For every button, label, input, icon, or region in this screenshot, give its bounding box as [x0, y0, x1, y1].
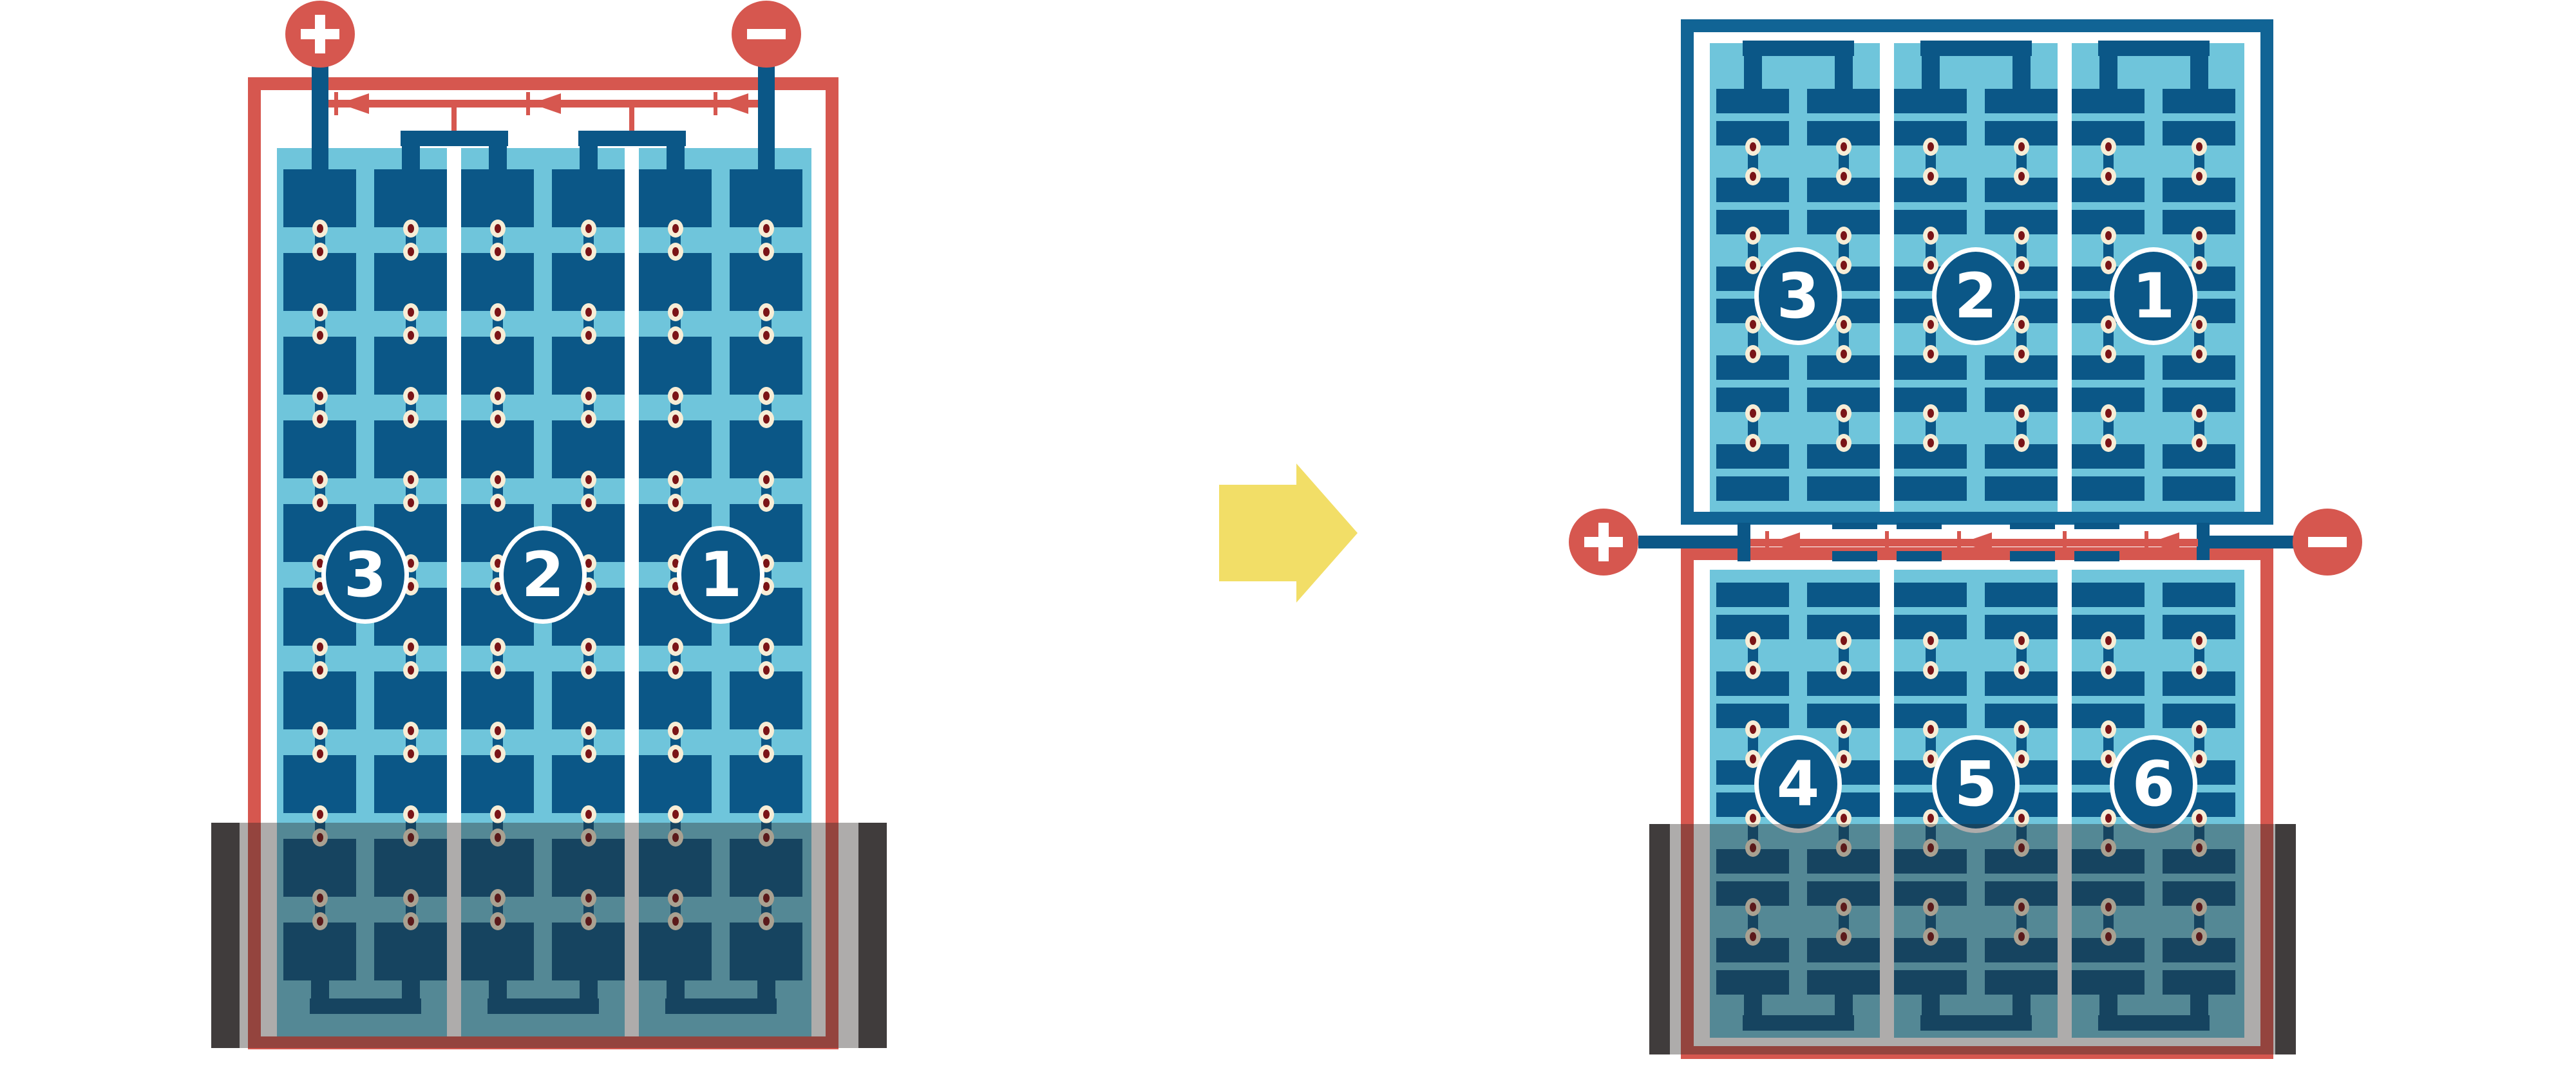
shade-post	[2275, 824, 2296, 1054]
shade-layer	[0, 0, 2576, 1068]
shade-post	[858, 823, 887, 1048]
shade-overlay	[1649, 824, 2296, 1054]
shade-overlay	[211, 823, 887, 1048]
shade-post	[211, 823, 240, 1048]
diagram-canvas: 321 321456	[0, 0, 2576, 1068]
shade-post	[1649, 824, 1670, 1054]
